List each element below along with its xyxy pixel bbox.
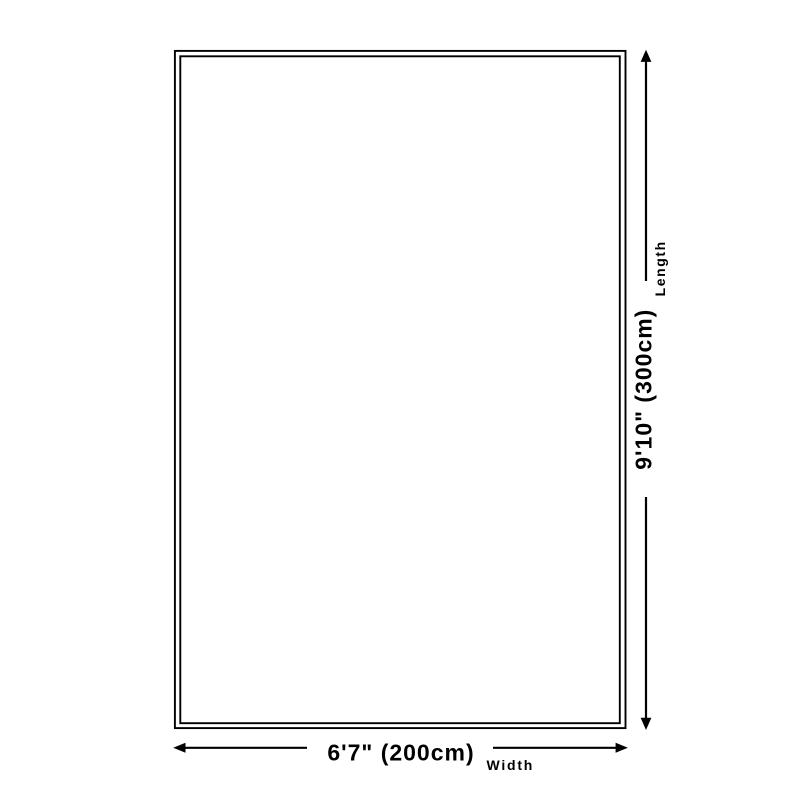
svg-text:9'10" (300cm): 9'10" (300cm)	[630, 309, 656, 470]
svg-text:Width: Width	[487, 757, 535, 773]
svg-text:Length: Length	[652, 240, 668, 296]
svg-text:6'7" (200cm): 6'7" (200cm)	[327, 739, 474, 765]
